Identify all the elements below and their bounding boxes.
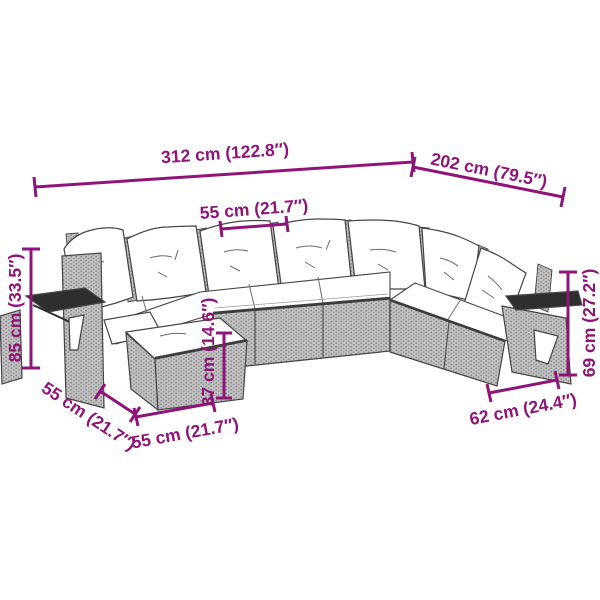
dim-label-side-length: 202 cm (79.5″) <box>429 149 549 192</box>
dim-label-stool-width: 55 cm (21.7″) <box>130 413 240 452</box>
left-armrest-body <box>62 253 104 408</box>
right-armrest-unit <box>502 291 582 384</box>
dim-label-seat-height: 37 cm (14.6″) <box>198 298 218 407</box>
back-cushion <box>200 221 279 296</box>
product-dimension-diagram: 312 cm (122.8″) 202 cm (79.5″) 55 cm (21… <box>0 0 600 600</box>
dim-label-total-height: 85 cm (33.5″) <box>5 254 25 363</box>
sofa-illustration <box>0 219 582 410</box>
dim-label-end-width: 62 cm (24.4″) <box>468 389 578 429</box>
dim-label-back-height: 69 cm (27.2″) <box>579 269 599 378</box>
dim-label-seat-width: 55 cm (21.7″) <box>199 195 309 223</box>
sofa-diagram-canvas: 312 cm (122.8″) 202 cm (79.5″) 55 cm (21… <box>0 0 600 600</box>
back-cushion <box>127 226 206 301</box>
dim-label-total-width: 312 cm (122.8″) <box>160 139 289 167</box>
